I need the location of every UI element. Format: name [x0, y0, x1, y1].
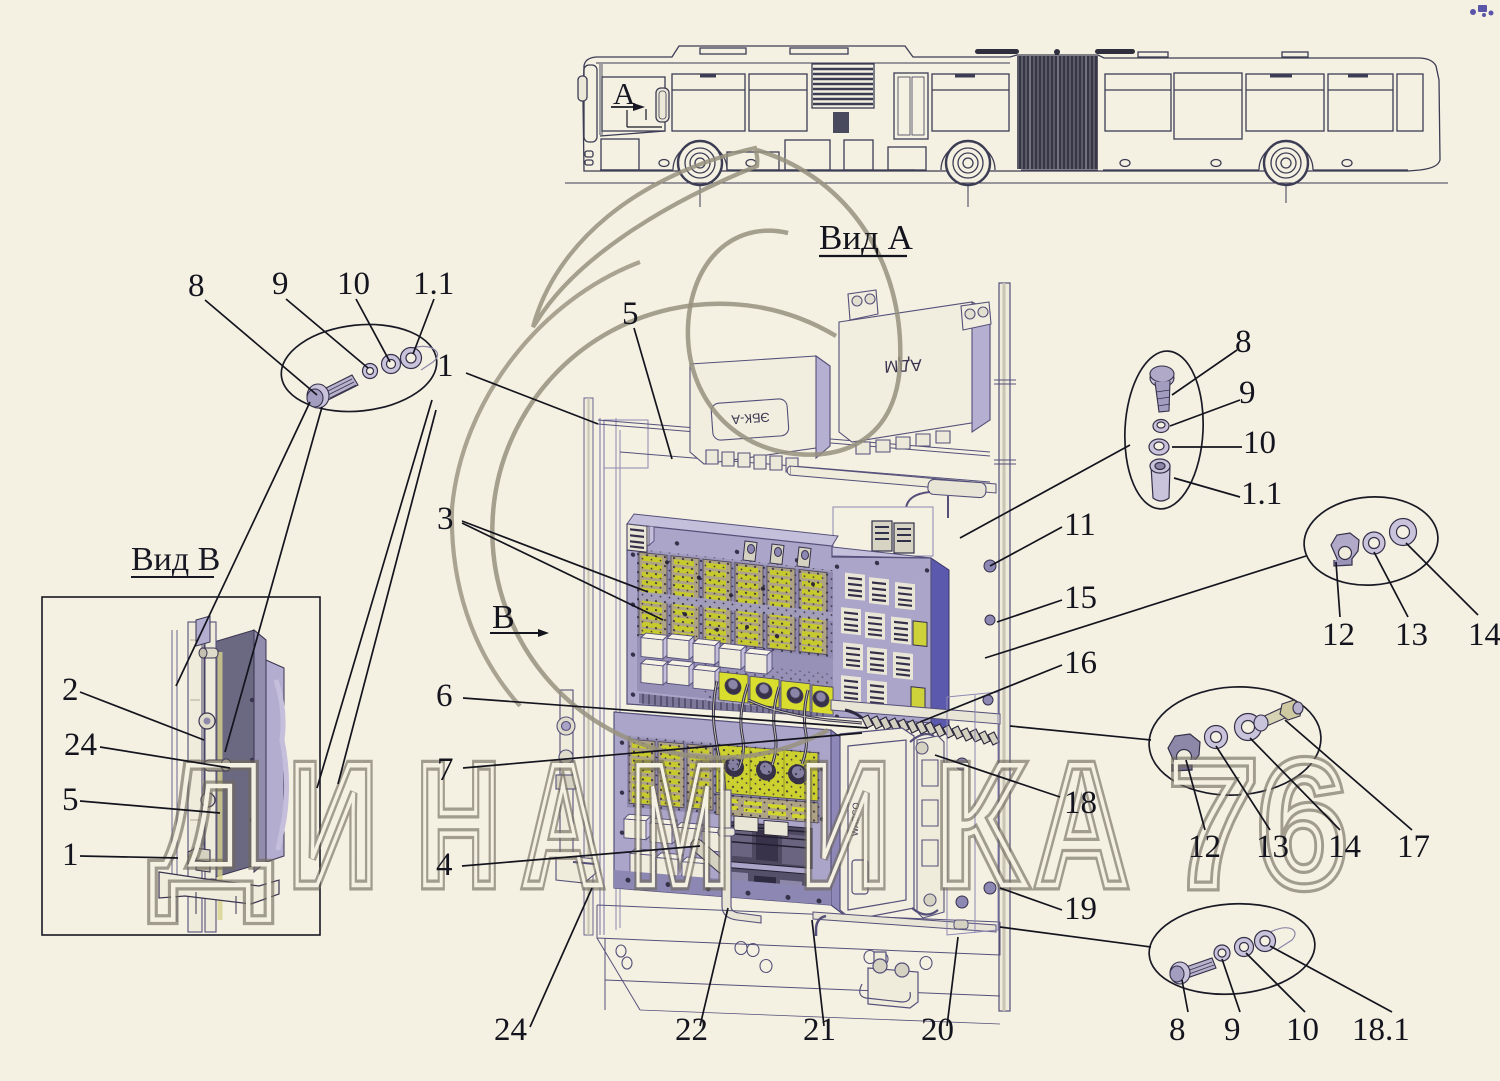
svg-text:15: 15 — [1064, 580, 1097, 616]
svg-text:8: 8 — [1235, 324, 1252, 360]
svg-text:2: 2 — [62, 672, 79, 708]
svg-text:13: 13 — [1256, 829, 1289, 865]
svg-text:19: 19 — [1064, 891, 1097, 927]
svg-text:1.1: 1.1 — [413, 266, 454, 302]
svg-text:14: 14 — [1468, 617, 1500, 653]
svg-text:1.1: 1.1 — [1241, 476, 1282, 512]
svg-text:21: 21 — [803, 1012, 836, 1048]
svg-text:A: A — [613, 76, 636, 111]
svg-text:Вид А: Вид А — [819, 218, 914, 257]
svg-text:9: 9 — [1239, 375, 1256, 411]
svg-text:6: 6 — [436, 678, 453, 714]
svg-text:8: 8 — [188, 268, 205, 304]
svg-text:5: 5 — [62, 782, 79, 818]
svg-text:1: 1 — [437, 348, 454, 384]
svg-text:18: 18 — [1064, 785, 1097, 821]
svg-text:ЭБК-А: ЭБК-А — [731, 410, 771, 428]
svg-text:4: 4 — [436, 847, 453, 883]
svg-text:13: 13 — [1395, 617, 1428, 653]
svg-text:В: В — [492, 599, 515, 636]
svg-text:10: 10 — [337, 266, 370, 302]
svg-text:11: 11 — [1064, 507, 1096, 543]
svg-text:8: 8 — [1169, 1012, 1186, 1048]
svg-text:10: 10 — [1243, 425, 1276, 461]
svg-text:АДМ: АДМ — [884, 355, 923, 376]
svg-text:9: 9 — [272, 266, 289, 302]
svg-text:7: 7 — [437, 752, 454, 788]
svg-text:22: 22 — [675, 1012, 708, 1048]
svg-text:5: 5 — [622, 296, 639, 332]
svg-text:17: 17 — [1397, 829, 1430, 865]
svg-text:14: 14 — [1328, 829, 1361, 865]
svg-text:24: 24 — [64, 727, 97, 763]
svg-text:10: 10 — [1286, 1012, 1319, 1048]
svg-text:16: 16 — [1064, 645, 1097, 681]
svg-text:20: 20 — [921, 1012, 954, 1048]
svg-text:3: 3 — [437, 501, 454, 537]
svg-text:9: 9 — [1224, 1012, 1241, 1048]
svg-text:Вид В: Вид В — [131, 541, 220, 578]
svg-text:24: 24 — [494, 1012, 527, 1048]
svg-text:1: 1 — [62, 837, 79, 873]
svg-text:18.1: 18.1 — [1352, 1012, 1410, 1048]
svg-text:12: 12 — [1322, 617, 1355, 653]
svg-text:12: 12 — [1188, 829, 1221, 865]
